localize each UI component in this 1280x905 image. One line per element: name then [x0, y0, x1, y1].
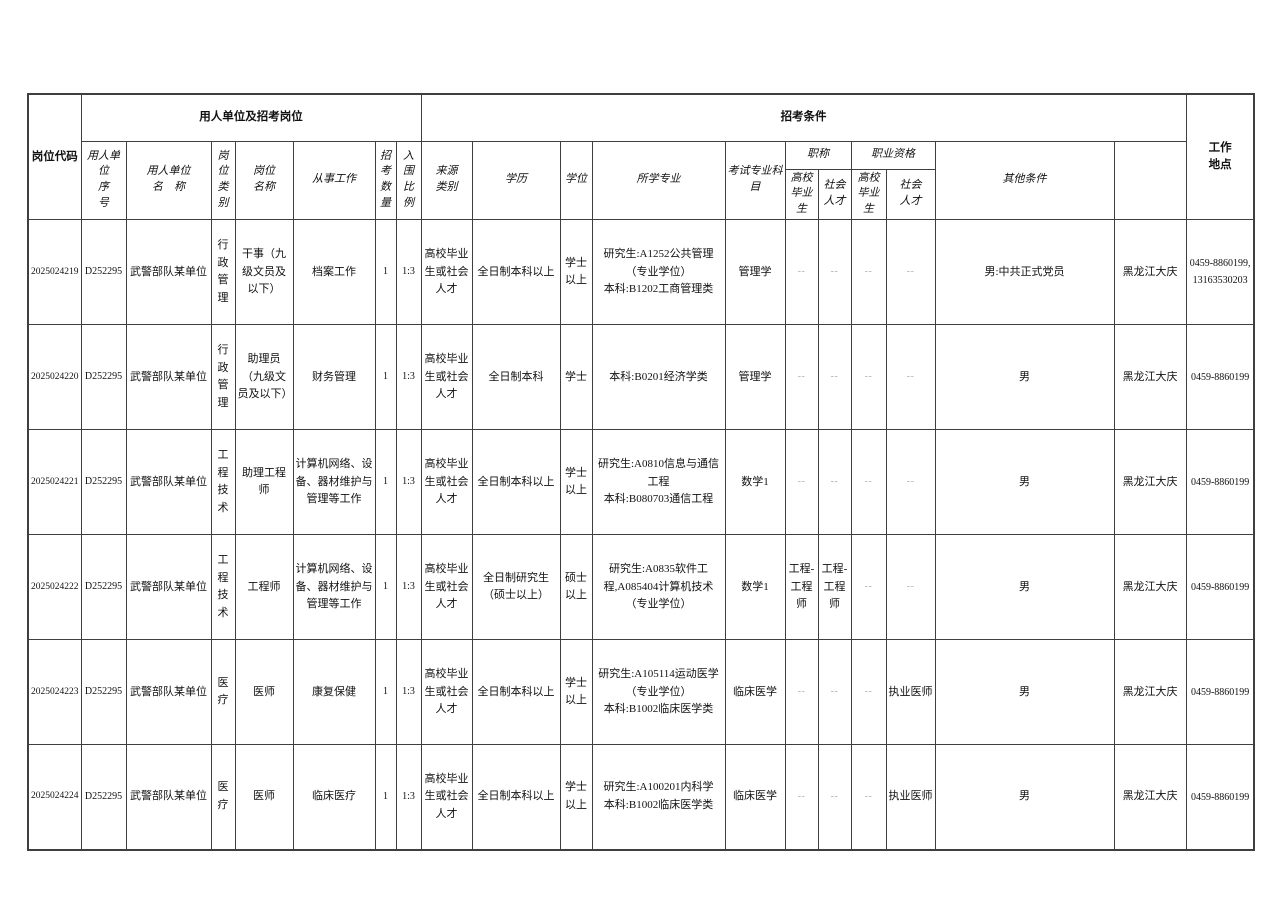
table-row: 2025024219 D252295 武警部队某单位 行政管理 干事（九级文员及… — [28, 220, 1254, 325]
header-qual-grad: 高校 毕业生 — [851, 169, 886, 220]
cell-source-type: 高校毕业生或社会人才 — [421, 640, 472, 745]
cell-work-location: 黑龙江大庆 — [1114, 325, 1186, 430]
cell-post-category: 医疗 — [211, 640, 235, 745]
cell-post-category: 行政管理 — [211, 325, 235, 430]
table-row: 2025024221 D252295 武警部队某单位 工程技术 助理工程师 计算… — [28, 430, 1254, 535]
header-post-name: 岗位 名称 — [235, 141, 293, 220]
cell-job-duty: 计算机网络、设备、器材维护与管理等工作 — [293, 430, 375, 535]
cell-education: 全日制研究生（硕士以上） — [472, 535, 560, 640]
cell-job-duty: 临床医疗 — [293, 745, 375, 850]
cell-phone: 0459-8860199 — [1186, 430, 1254, 535]
cell-title-grad: -- — [785, 325, 818, 430]
cell-employer-no: D252295 — [81, 535, 126, 640]
cell-employer-name: 武警部队某单位 — [126, 325, 211, 430]
header-work-location: 工作 地点 — [1186, 94, 1254, 220]
cell-qual-grad: -- — [851, 220, 886, 325]
cell-exam-subject: 数学1 — [725, 430, 785, 535]
cell-title-social: -- — [818, 640, 851, 745]
cell-recruit-count: 1 — [375, 745, 396, 850]
cell-qual-grad: -- — [851, 640, 886, 745]
cell-recruit-count: 1 — [375, 430, 396, 535]
cell-title-social: 工程-工程师 — [818, 535, 851, 640]
header-title-group: 职称 — [785, 141, 851, 169]
cell-employer-name: 武警部队某单位 — [126, 745, 211, 850]
header-major: 所学专业 — [592, 141, 725, 220]
cell-qual-grad: -- — [851, 745, 886, 850]
cell-major: 研究生:A0810信息与通信工程 本科:B080703通信工程 — [592, 430, 725, 535]
header-other-conditions: 其他条件 — [935, 141, 1114, 220]
cell-degree: 学士以上 — [560, 430, 592, 535]
cell-degree: 学士 — [560, 325, 592, 430]
cell-title-grad: 工程-工程师 — [785, 535, 818, 640]
cell-employer-name: 武警部队某单位 — [126, 430, 211, 535]
header-employer-no: 用人单 位 序 号 — [81, 141, 126, 220]
cell-source-type: 高校毕业生或社会人才 — [421, 325, 472, 430]
cell-other-conditions: 男 — [935, 640, 1114, 745]
header-qual-social: 社会 人才 — [886, 169, 935, 220]
cell-ratio: 1:3 — [396, 430, 421, 535]
header-recruit-count: 招 考 数 量 — [375, 141, 396, 220]
table-row: 2025024224 D252295 武警部队某单位 医疗 医师 临床医疗 1 … — [28, 745, 1254, 850]
cell-degree: 学士以上 — [560, 640, 592, 745]
cell-phone: 0459-8860199,13163530203 — [1186, 220, 1254, 325]
cell-education: 全日制本科以上 — [472, 745, 560, 850]
cell-job-duty: 档案工作 — [293, 220, 375, 325]
cell-exam-subject: 管理学 — [725, 325, 785, 430]
cell-qual-grad: -- — [851, 325, 886, 430]
cell-other-conditions: 男 — [935, 745, 1114, 850]
cell-education: 全日制本科以上 — [472, 220, 560, 325]
cell-job-code: 2025024224 — [28, 745, 81, 850]
cell-major: 研究生:A1252公共管理（专业学位） 本科:B1202工商管理类 — [592, 220, 725, 325]
cell-ratio: 1:3 — [396, 325, 421, 430]
cell-job-duty: 财务管理 — [293, 325, 375, 430]
header-exam-subject: 考试专业科 目 — [725, 141, 785, 220]
cell-employer-name: 武警部队某单位 — [126, 535, 211, 640]
table-row: 2025024222 D252295 武警部队某单位 工程技术 工程师 计算机网… — [28, 535, 1254, 640]
cell-post-category: 工程技术 — [211, 535, 235, 640]
cell-job-code: 2025024222 — [28, 535, 81, 640]
cell-title-grad: -- — [785, 745, 818, 850]
header-qualification-group: 职业资格 — [851, 141, 935, 169]
table-row: 2025024223 D252295 武警部队某单位 医疗 医师 康复保健 1 … — [28, 640, 1254, 745]
cell-job-code: 2025024220 — [28, 325, 81, 430]
cell-degree: 硕士以上 — [560, 535, 592, 640]
cell-phone: 0459-8860199 — [1186, 745, 1254, 850]
header-group-conditions: 招考条件 — [421, 94, 1186, 141]
cell-major: 研究生:A105114运动医学（专业学位） 本科:B1002临床医学类 — [592, 640, 725, 745]
cell-job-duty: 康复保健 — [293, 640, 375, 745]
cell-post-name: 医师 — [235, 640, 293, 745]
cell-education: 全日制本科 — [472, 325, 560, 430]
cell-other-conditions: 男 — [935, 535, 1114, 640]
cell-phone: 0459-8860199 — [1186, 535, 1254, 640]
cell-major: 研究生:A0835软件工程,A085404计算机技术（专业学位） — [592, 535, 725, 640]
header-ratio: 入 围 比 例 — [396, 141, 421, 220]
document-page: { "table": { "header": { "job_code": "岗位… — [0, 0, 1280, 905]
cell-work-location: 黑龙江大庆 — [1114, 430, 1186, 535]
cell-other-conditions: 男 — [935, 430, 1114, 535]
cell-source-type: 高校毕业生或社会人才 — [421, 220, 472, 325]
cell-phone: 0459-8860199 — [1186, 325, 1254, 430]
cell-post-name: 工程师 — [235, 535, 293, 640]
recruitment-table-sheet: 岗位代码 用人单位及招考岗位 招考条件 工作 地点 咨询电话 用人单 位 序 号… — [27, 93, 1255, 851]
cell-recruit-count: 1 — [375, 220, 396, 325]
cell-exam-subject: 数学1 — [725, 535, 785, 640]
cell-qual-social: -- — [886, 220, 935, 325]
cell-qual-social: 执业医师 — [886, 640, 935, 745]
cell-work-location: 黑龙江大庆 — [1114, 220, 1186, 325]
cell-major: 本科:B0201经济学类 — [592, 325, 725, 430]
header-group-employer: 用人单位及招考岗位 — [81, 94, 421, 141]
cell-job-code: 2025024219 — [28, 220, 81, 325]
cell-work-location: 黑龙江大庆 — [1114, 745, 1186, 850]
cell-post-name: 助理员（九级文员及以下） — [235, 325, 293, 430]
cell-major: 研究生:A100201内科学 本科:B1002临床医学类 — [592, 745, 725, 850]
cell-qual-grad: -- — [851, 430, 886, 535]
cell-ratio: 1:3 — [396, 535, 421, 640]
cell-qual-social: -- — [886, 430, 935, 535]
cell-post-name: 助理工程师 — [235, 430, 293, 535]
cell-title-social: -- — [818, 220, 851, 325]
recruitment-positions-table: 岗位代码 用人单位及招考岗位 招考条件 工作 地点 咨询电话 用人单 位 序 号… — [27, 93, 1255, 851]
cell-job-duty: 计算机网络、设备、器材维护与管理等工作 — [293, 535, 375, 640]
cell-job-code: 2025024221 — [28, 430, 81, 535]
header-education: 学历 — [472, 141, 560, 220]
cell-post-category: 行政管理 — [211, 220, 235, 325]
cell-title-grad: -- — [785, 430, 818, 535]
cell-qual-grad: -- — [851, 535, 886, 640]
header-degree: 学位 — [560, 141, 592, 220]
cell-title-grad: -- — [785, 220, 818, 325]
cell-other-conditions: 男 — [935, 325, 1114, 430]
cell-employer-no: D252295 — [81, 640, 126, 745]
cell-recruit-count: 1 — [375, 640, 396, 745]
header-employer-name: 用人单位 名 称 — [126, 141, 211, 220]
cell-work-location: 黑龙江大庆 — [1114, 535, 1186, 640]
cell-employer-no: D252295 — [81, 325, 126, 430]
cell-other-conditions: 男:中共正式党员 — [935, 220, 1114, 325]
cell-ratio: 1:3 — [396, 640, 421, 745]
cell-source-type: 高校毕业生或社会人才 — [421, 535, 472, 640]
cell-employer-no: D252295 — [81, 430, 126, 535]
header-source-type: 来源 类别 — [421, 141, 472, 220]
cell-degree: 学士以上 — [560, 745, 592, 850]
cell-title-grad: -- — [785, 640, 818, 745]
cell-title-social: -- — [818, 430, 851, 535]
cell-work-location: 黑龙江大庆 — [1114, 640, 1186, 745]
cell-exam-subject: 临床医学 — [725, 745, 785, 850]
cell-qual-social: -- — [886, 325, 935, 430]
cell-post-name: 医师 — [235, 745, 293, 850]
cell-exam-subject: 管理学 — [725, 220, 785, 325]
cell-title-social: -- — [818, 745, 851, 850]
cell-ratio: 1:3 — [396, 745, 421, 850]
header-title-grad: 高校 毕业生 — [785, 169, 818, 220]
cell-post-name: 干事（九级文员及以下） — [235, 220, 293, 325]
cell-degree: 学士以上 — [560, 220, 592, 325]
cell-recruit-count: 1 — [375, 535, 396, 640]
cell-post-category: 医疗 — [211, 745, 235, 850]
cell-qual-social: 执业医师 — [886, 745, 935, 850]
table-body: 2025024219 D252295 武警部队某单位 行政管理 干事（九级文员及… — [28, 220, 1254, 850]
cell-qual-social: -- — [886, 535, 935, 640]
cell-source-type: 高校毕业生或社会人才 — [421, 430, 472, 535]
header-job-duty: 从事工作 — [293, 141, 375, 220]
header-post-category: 岗 位 类 别 — [211, 141, 235, 220]
table-row: 2025024220 D252295 武警部队某单位 行政管理 助理员（九级文员… — [28, 325, 1254, 430]
header-job-code: 岗位代码 — [28, 94, 81, 220]
cell-employer-no: D252295 — [81, 220, 126, 325]
header-title-social: 社会 人才 — [818, 169, 851, 220]
cell-employer-name: 武警部队某单位 — [126, 220, 211, 325]
cell-employer-no: D252295 — [81, 745, 126, 850]
cell-source-type: 高校毕业生或社会人才 — [421, 745, 472, 850]
cell-recruit-count: 1 — [375, 325, 396, 430]
cell-education: 全日制本科以上 — [472, 640, 560, 745]
cell-title-social: -- — [818, 325, 851, 430]
cell-education: 全日制本科以上 — [472, 430, 560, 535]
cell-job-code: 2025024223 — [28, 640, 81, 745]
cell-exam-subject: 临床医学 — [725, 640, 785, 745]
cell-phone: 0459-8860199 — [1186, 640, 1254, 745]
cell-employer-name: 武警部队某单位 — [126, 640, 211, 745]
cell-post-category: 工程技术 — [211, 430, 235, 535]
cell-ratio: 1:3 — [396, 220, 421, 325]
